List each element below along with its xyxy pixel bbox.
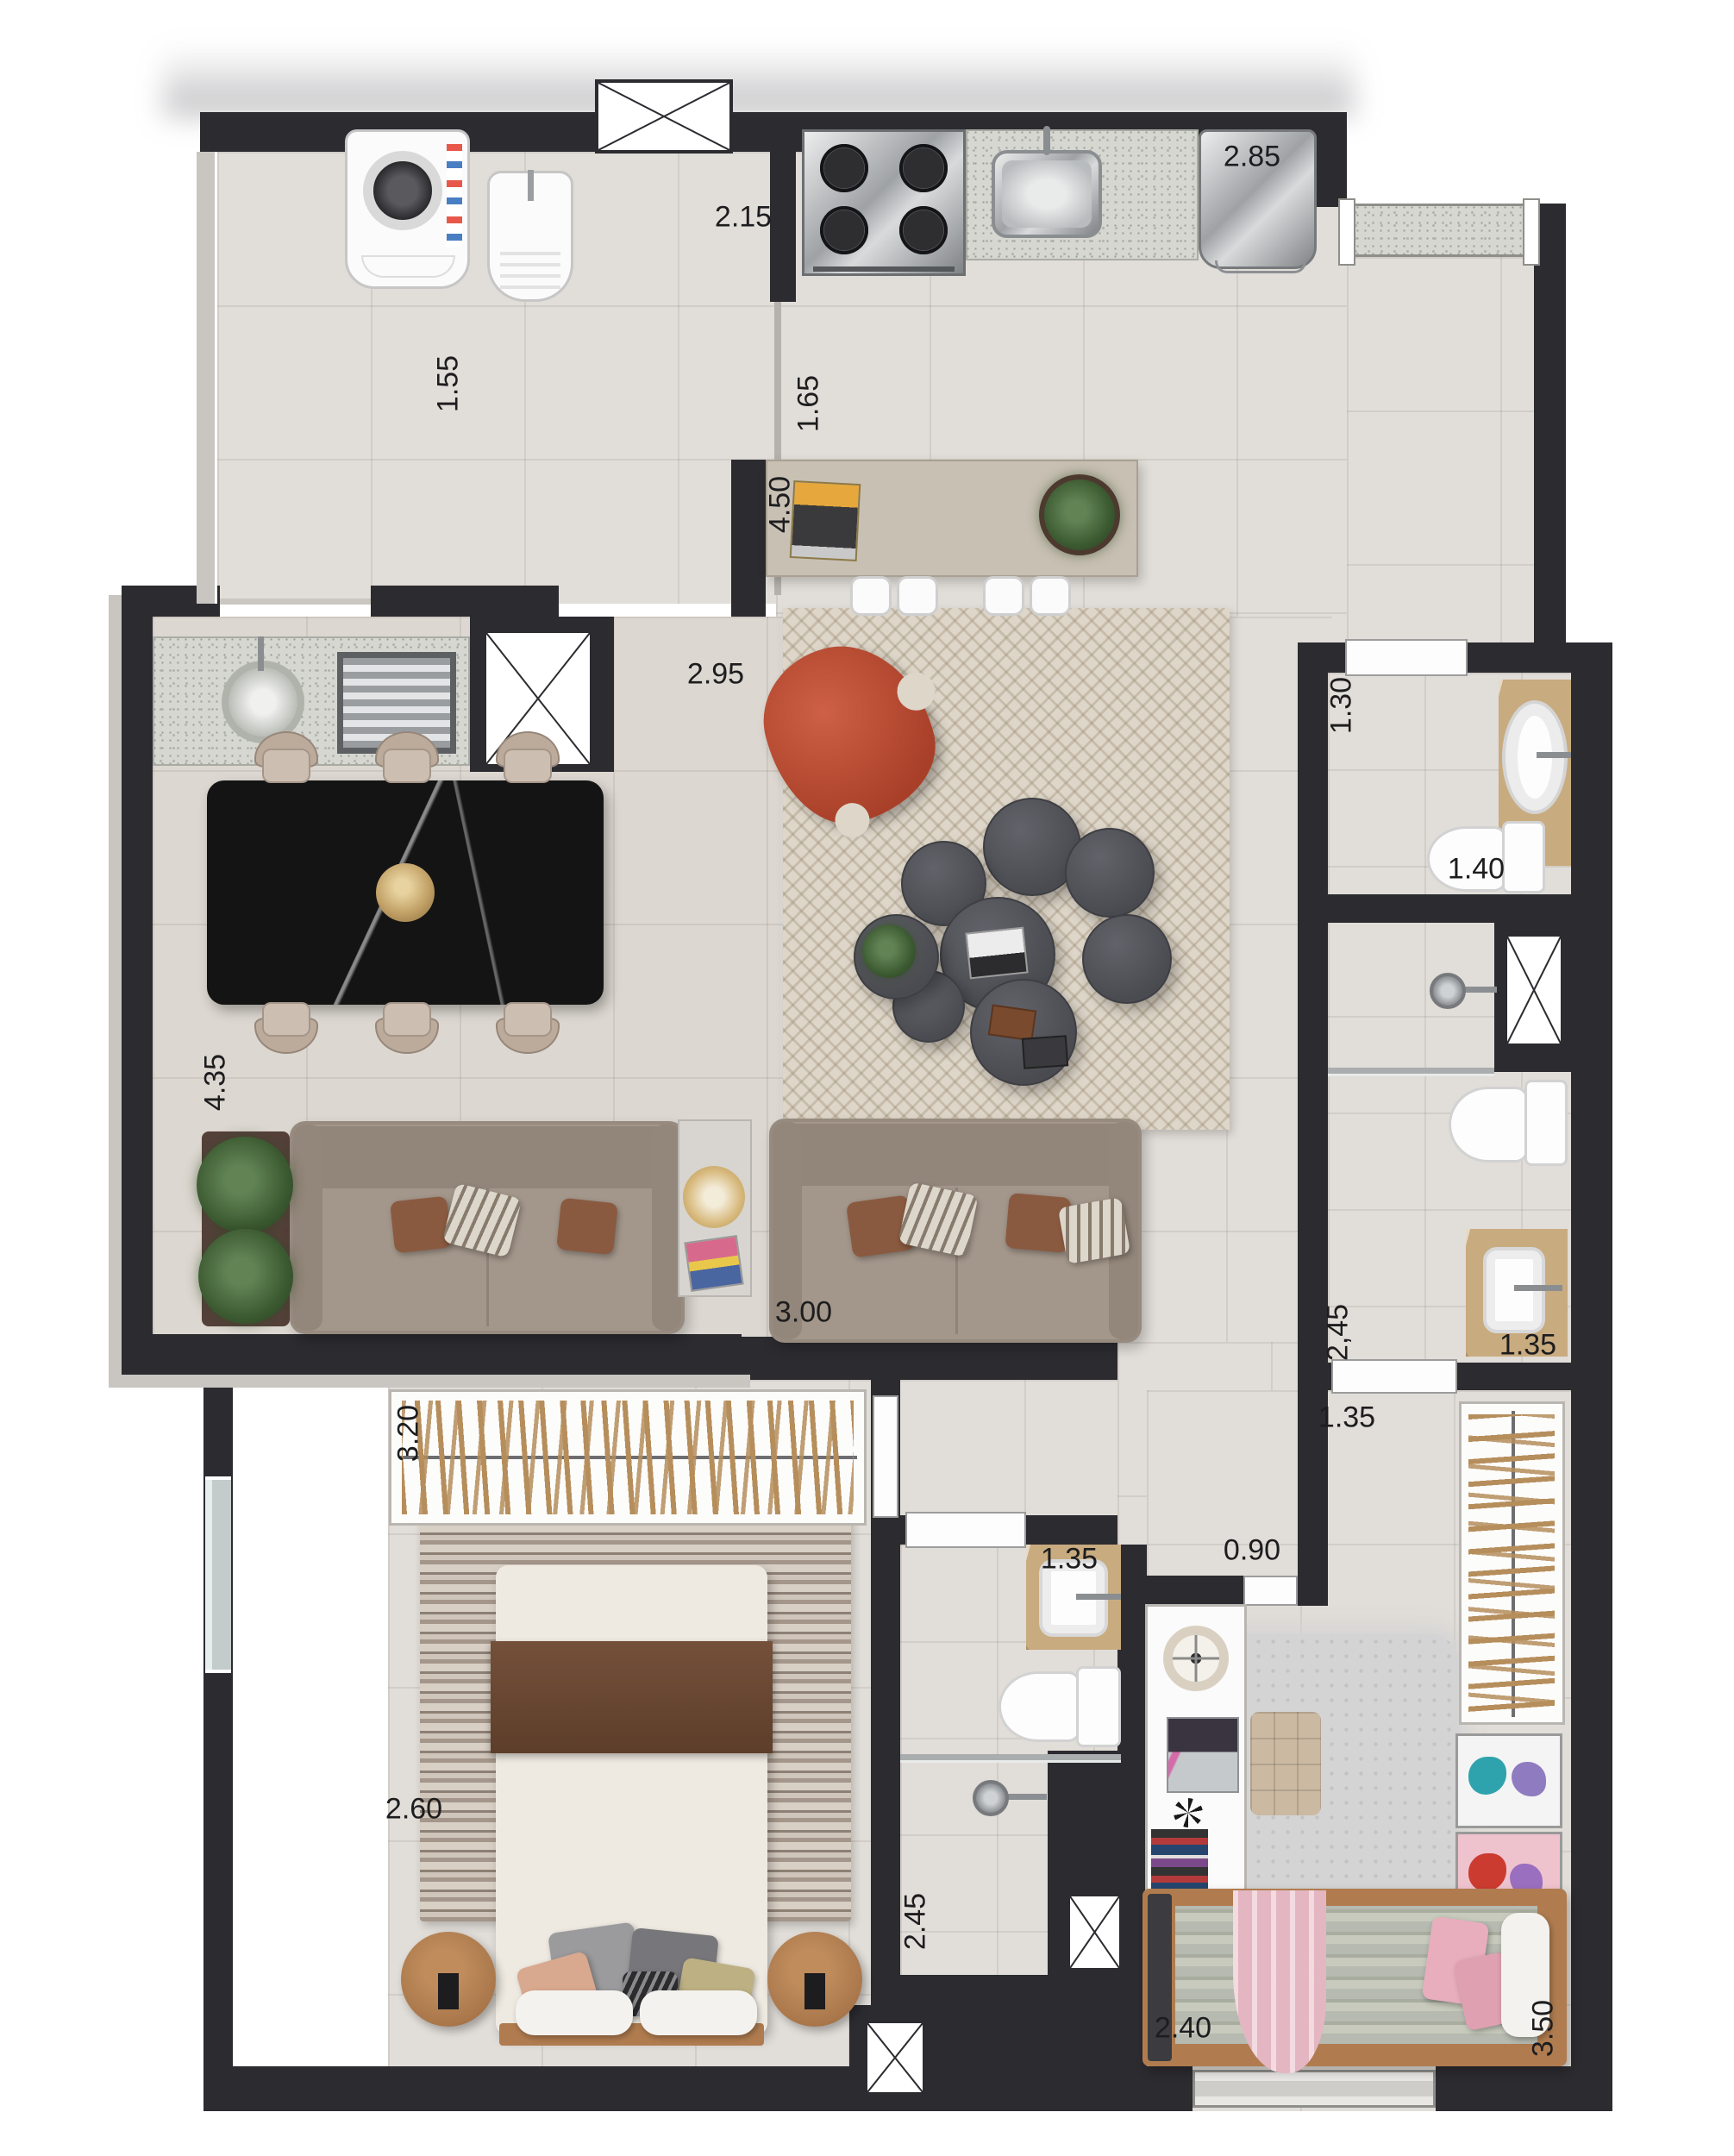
kitchen-sink	[992, 150, 1102, 238]
washer-base	[361, 255, 455, 278]
dim-service-passage: 1.55	[432, 355, 466, 412]
tank-ridges	[500, 244, 560, 289]
master-balcony-glass-door	[205, 1476, 231, 1673]
closet-hangers	[402, 1401, 854, 1514]
washer-panel	[447, 144, 462, 248]
bed-throw	[491, 1641, 773, 1753]
master-bedroom-door	[873, 1395, 898, 1518]
dim-suite-bath-len: 2,45	[1322, 1304, 1355, 1361]
nightstand-lamp	[438, 1973, 459, 2009]
balcony-plant	[197, 1137, 293, 1233]
dim-island: 4.50	[764, 476, 798, 533]
laundry-tank-sink	[487, 171, 573, 302]
suite-shower-head	[1430, 973, 1466, 1009]
kids-shelf-top	[1455, 1733, 1562, 1828]
side-table-magazine	[684, 1235, 743, 1292]
bar-stool	[983, 576, 1024, 616]
social-toilet-tank	[1076, 1666, 1121, 1747]
burner-icon	[820, 206, 868, 254]
kitchen-counter	[966, 129, 1199, 260]
wall-kids-bottom-west	[1117, 2066, 1193, 2111]
lavabo-door	[1345, 639, 1468, 676]
dining-table	[207, 780, 604, 1005]
dining-chair	[375, 731, 439, 785]
dim-master-bedroom: 2.60	[385, 1793, 442, 1827]
wall-right-upper	[1534, 204, 1566, 669]
coffee-table-tray	[1022, 1035, 1068, 1069]
burner-icon	[820, 144, 868, 192]
kitchen-floor-east	[1347, 257, 1565, 642]
bed-pillow-white	[516, 1990, 633, 2035]
dim-dining: 2.95	[687, 658, 744, 692]
bar-stool	[1030, 576, 1071, 616]
dim-kids-length: 3.50	[1527, 2000, 1561, 2057]
desk-laptop	[1167, 1717, 1239, 1793]
suite-bath-faucet-icon	[1514, 1285, 1562, 1291]
wall-lavabo-left	[1298, 642, 1328, 927]
island-magazine	[790, 480, 861, 561]
dining-chair	[496, 731, 560, 785]
social-shower-arm	[1004, 1794, 1047, 1800]
laundry-passage-threshold	[220, 599, 371, 605]
wall-kitchen-divider	[770, 152, 796, 302]
suite-bath-door	[1331, 1359, 1457, 1394]
toy	[1468, 1853, 1506, 1891]
shaft-bottom	[864, 2020, 926, 2096]
social-shower-glass	[900, 1754, 1121, 1760]
gourmet-faucet-icon	[258, 636, 264, 671]
washing-machine	[345, 129, 470, 289]
kids-pouf	[1250, 1712, 1321, 1815]
kids-window	[1193, 2070, 1436, 2108]
burner-icon	[899, 144, 948, 192]
sofa-pillow	[1058, 1197, 1130, 1264]
kitchen-faucet-icon	[1043, 126, 1050, 155]
table-centerpiece	[376, 863, 435, 922]
coffee-table	[1065, 828, 1155, 918]
dim-hall: 1.35	[1318, 1401, 1375, 1435]
apartment-floor-plan: 2.15 2.85 1.55 1.65 4.50 2.95 1.30 1.40 …	[0, 0, 1734, 2156]
balcony-sofa-pillow	[390, 1196, 452, 1254]
tank-faucet-icon	[528, 170, 534, 201]
dim-kitchen-aisle: 1.65	[792, 375, 826, 432]
stove-handle	[813, 266, 955, 272]
dining-chair	[375, 1000, 439, 1054]
coffee-table	[1082, 914, 1172, 1004]
burner-icon	[899, 206, 948, 254]
bed-pillow-white	[640, 1990, 757, 2035]
toy	[1468, 1757, 1506, 1795]
passage-floor	[871, 1380, 1117, 1515]
coffee-table-tray	[988, 1005, 1037, 1042]
dim-social-bath-sink: 1.35	[1041, 1543, 1098, 1576]
wall-balcony-left	[122, 586, 153, 1375]
suite-toilet-tank	[1524, 1080, 1568, 1166]
kids-closet-hangers	[1468, 1414, 1555, 1714]
dim-laundry: 2.15	[715, 201, 772, 235]
toy	[1512, 1762, 1546, 1796]
kids-blanket	[1233, 1890, 1326, 2073]
balcony-plant	[198, 1229, 293, 1324]
wall-kids-bottom-east	[1436, 2066, 1612, 2111]
fridge-handles	[1215, 260, 1306, 273]
shaft-social-bath	[1067, 1893, 1123, 1971]
dim-suite-bath-width: 1.35	[1499, 1329, 1556, 1363]
kitchen-window	[1347, 204, 1528, 257]
coffee-table-book	[965, 927, 1028, 980]
wall-balcony-bottom	[122, 1334, 742, 1375]
dining-chair	[254, 731, 318, 785]
suite-shower-arm	[1461, 987, 1497, 993]
kids-desk	[1145, 1604, 1247, 1930]
dining-chair	[254, 1000, 318, 1054]
dim-balcony: 4.35	[199, 1054, 233, 1111]
social-shower-head	[973, 1780, 1009, 1816]
stove	[802, 129, 966, 276]
lavabo-toilet-tank	[1502, 821, 1545, 893]
washer-drum	[363, 151, 442, 230]
dim-lavabo-length: 1.40	[1448, 853, 1505, 887]
side-table-lamp	[683, 1166, 745, 1228]
balcony-railing-left	[109, 595, 122, 1384]
suite-toilet-bowl	[1449, 1087, 1528, 1163]
kitchen-window-cap-right	[1523, 198, 1540, 266]
nightstand-lamp	[804, 1973, 825, 2009]
wall-master-bottom	[203, 2066, 1147, 2111]
dim-closet: 3.20	[392, 1405, 426, 1462]
dining-chair	[496, 1000, 560, 1054]
coffee-table-plant	[862, 924, 916, 978]
balcony-railing-bottom	[109, 1375, 750, 1388]
exterior-shadow	[164, 47, 1354, 116]
wall-island-stub	[731, 460, 766, 617]
master-closet	[389, 1389, 867, 1526]
lavabo-faucet-icon	[1537, 752, 1571, 758]
laundry-left-glass-wall	[197, 152, 217, 604]
dim-social-bath-len: 2.45	[899, 1893, 933, 1950]
kids-room-door	[1243, 1576, 1298, 1606]
wall-fridge-corner	[1317, 112, 1347, 207]
suite-shower-glass	[1328, 1068, 1494, 1074]
kids-closet	[1459, 1401, 1565, 1725]
dim-lavabo-width: 1.30	[1325, 677, 1359, 734]
kitchen-window-cap-left	[1338, 198, 1355, 266]
social-bath-door	[905, 1512, 1026, 1548]
dim-kids-width: 2.40	[1155, 2012, 1211, 2046]
wall-social-bath-bottom	[871, 1975, 1147, 2005]
dim-hall-door: 0.90	[1224, 1534, 1280, 1568]
bar-stool	[850, 576, 892, 616]
wall-dining-top-b	[371, 586, 559, 617]
island-plant	[1039, 474, 1120, 555]
desk-clock	[1163, 1626, 1229, 1691]
dim-kitchen: 2.85	[1224, 141, 1280, 174]
bar-stool	[897, 576, 938, 616]
dim-living: 3.00	[775, 1296, 832, 1330]
balcony-sofa-pillow	[556, 1198, 618, 1256]
shaft-laundry	[595, 79, 733, 154]
wall-lavabo-bottom	[1298, 894, 1612, 923]
social-toilet-bowl	[998, 1671, 1080, 1742]
desk-spinner	[1174, 1798, 1203, 1827]
shaft-lavabo	[1504, 933, 1564, 1047]
social-bath-faucet-icon	[1076, 1594, 1121, 1600]
